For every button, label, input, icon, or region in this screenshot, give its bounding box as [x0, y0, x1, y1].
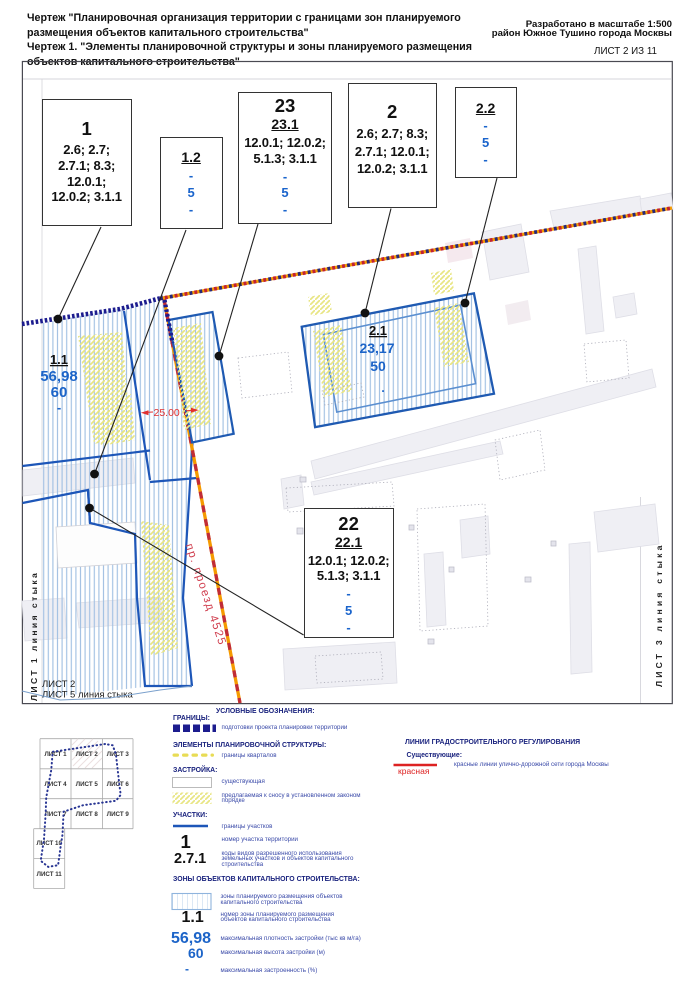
svg-text:ЛИСТ 5: ЛИСТ 5: [76, 781, 99, 788]
svg-text:-: -: [57, 400, 61, 415]
svg-text:ЛИСТ 11: ЛИСТ 11: [37, 871, 63, 878]
svg-text:2.1: 2.1: [369, 323, 387, 338]
svg-text:ЛИСТ 2: ЛИСТ 2: [76, 751, 99, 758]
svg-text:23,17: 23,17: [359, 340, 394, 356]
svg-text:ЛИСТ 1 линия стыка: ЛИСТ 1 линия стыка: [29, 571, 39, 701]
svg-text:60: 60: [51, 384, 68, 401]
svg-text:50: 50: [370, 358, 386, 374]
svg-text:ЛИСТ 3: ЛИСТ 3: [107, 751, 130, 758]
svg-text:ЛИСТ 8: ЛИСТ 8: [76, 811, 99, 818]
svg-text:ЛИСТ 6: ЛИСТ 6: [107, 781, 130, 788]
svg-text:56,98: 56,98: [40, 368, 78, 385]
svg-text:1.1: 1.1: [50, 352, 68, 367]
svg-text:ЛИСТ 2: ЛИСТ 2: [42, 679, 75, 690]
svg-text:ЛИСТ 10: ЛИСТ 10: [36, 840, 62, 847]
svg-text:25.00: 25.00: [154, 407, 180, 419]
svg-text:ЛИСТ 1: ЛИСТ 1: [44, 751, 67, 758]
svg-text:ЛИСТ 9: ЛИСТ 9: [107, 811, 130, 818]
svg-text:ЛИСТ 3 линия стыка: ЛИСТ 3 линия стыка: [654, 542, 664, 687]
svg-text:.: .: [381, 381, 384, 395]
